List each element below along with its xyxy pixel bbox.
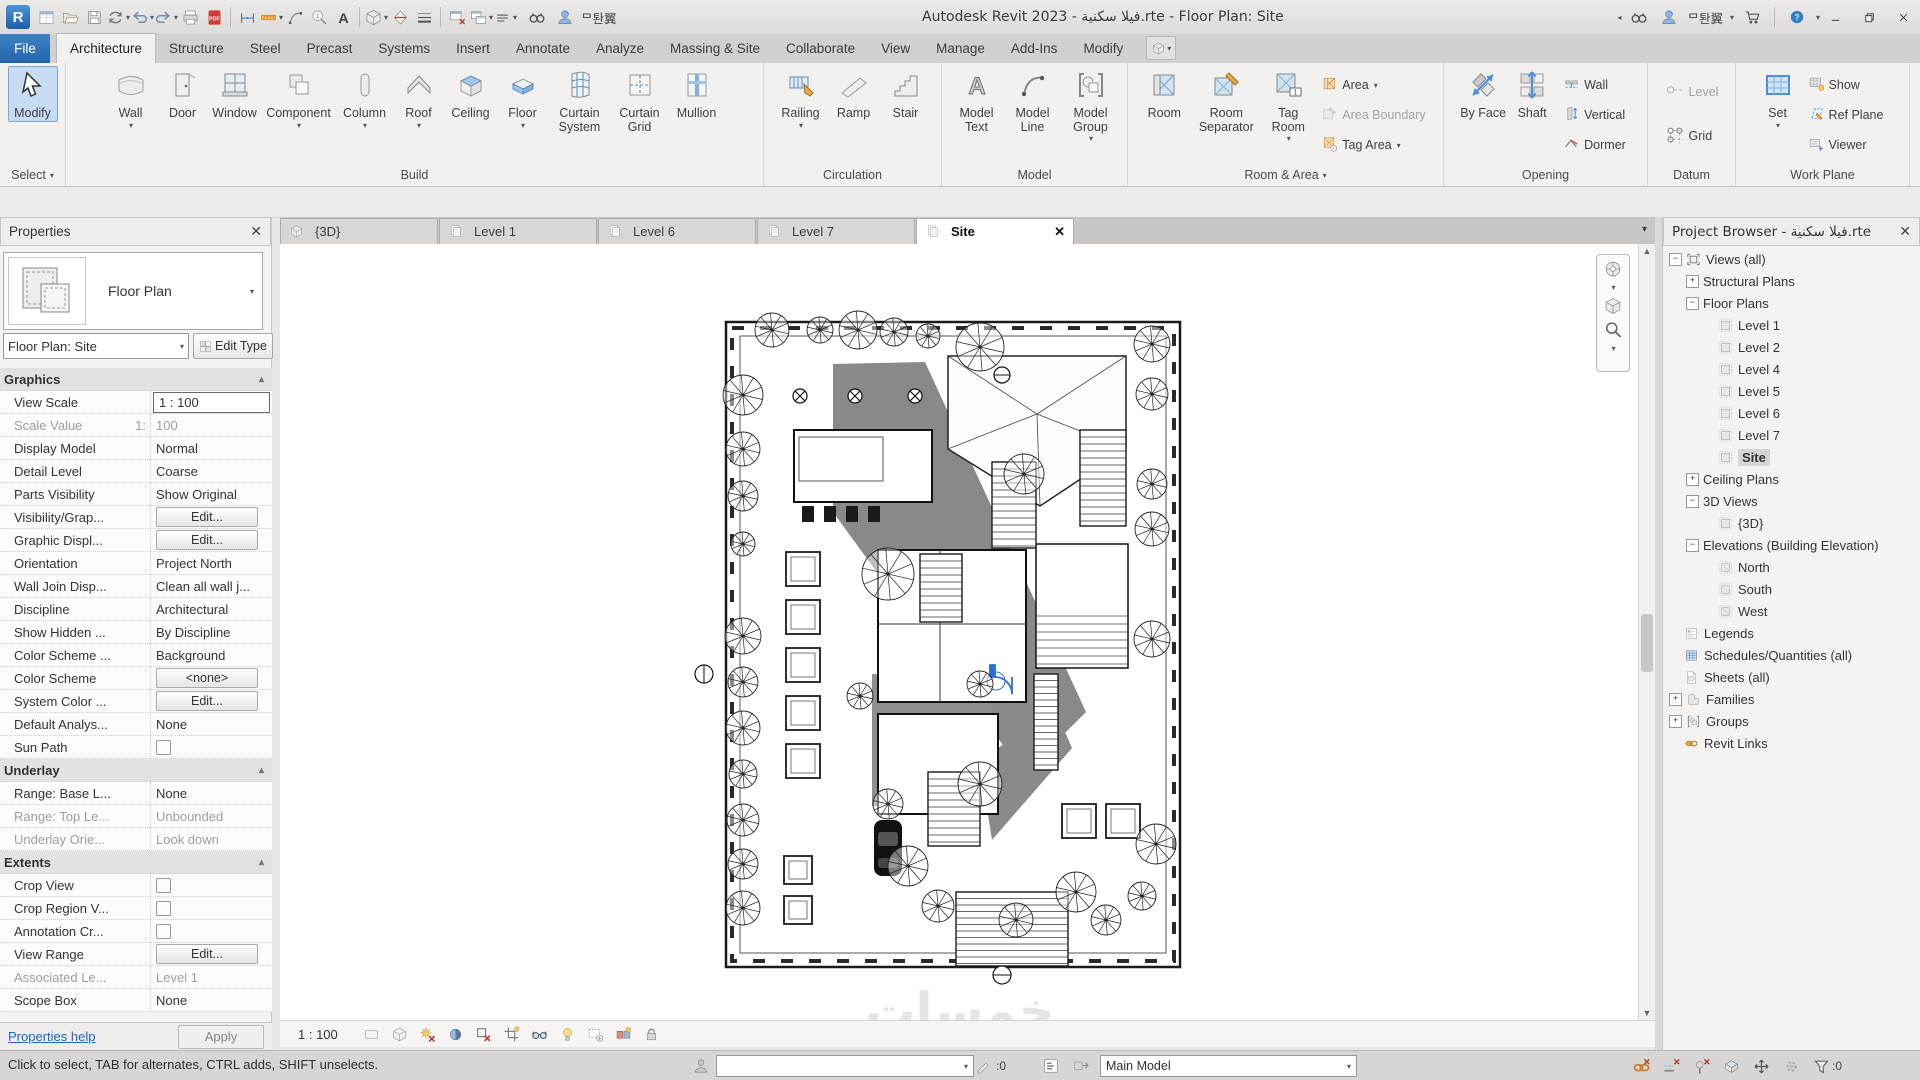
room-separator-button[interactable]: Room Separator: [1191, 66, 1261, 135]
property-row: Visibility/Grap...Edit...: [0, 506, 272, 529]
view-tab-level-7[interactable]: Level 7: [757, 218, 915, 244]
tab-view[interactable]: View: [868, 34, 923, 63]
svg-text:A: A: [338, 10, 348, 26]
area-boundary-button[interactable]: Area Boundary: [1315, 100, 1431, 130]
model-text-button[interactable]: AModel Text: [950, 66, 1004, 135]
property-value[interactable]: <none>: [150, 667, 272, 689]
button-label: Door: [169, 107, 196, 121]
property-value[interactable]: 100: [150, 414, 272, 436]
property-value[interactable]: [150, 874, 272, 896]
drawing-area[interactable]: خمسات ▾ ▾: [280, 244, 1638, 1020]
railing-button[interactable]: Railing▾: [775, 66, 827, 131]
property-value[interactable]: None: [150, 989, 272, 1011]
design-options-pick-icon[interactable]: [1070, 1055, 1092, 1077]
collapse-icon[interactable]: −: [1686, 539, 1699, 552]
export-pdf-icon[interactable]: PDF: [202, 4, 226, 30]
crop-view-icon[interactable]: [473, 1024, 494, 1045]
properties-help-link[interactable]: Properties help: [8, 1029, 95, 1044]
view-tab--3d-[interactable]: {3D}: [280, 218, 438, 244]
button-label: Room: [1148, 107, 1181, 121]
model-group-button[interactable]: Model Group▾: [1062, 66, 1120, 144]
panel-label-text: Build: [401, 168, 429, 182]
property-value[interactable]: Edit...: [150, 690, 272, 712]
tree-item-level-5[interactable]: Level 5: [1663, 380, 1920, 402]
temporary-view-properties-icon[interactable]: [585, 1024, 606, 1045]
svg-text:1: 1: [316, 14, 319, 20]
user-name[interactable]: ᄆ퇀翼: [1687, 8, 1723, 27]
chevron-down-icon: ▾: [521, 121, 525, 130]
property-value[interactable]: Edit...: [150, 529, 272, 551]
property-value[interactable]: Unbounded: [150, 805, 272, 827]
app-store-icon[interactable]: [1740, 4, 1764, 30]
checkbox[interactable]: [156, 878, 171, 893]
tree-item-south[interactable]: South: [1663, 578, 1920, 600]
panel-body: By FaceShaftWallVerticalDormer: [1444, 63, 1647, 164]
edit-button[interactable]: Edit...: [156, 691, 258, 711]
visual-style-icon[interactable]: [389, 1024, 410, 1045]
floor-plan-icon: [766, 224, 781, 239]
property-label-text: Wall Join Disp...: [14, 579, 107, 594]
select-underlay-icon[interactable]: [1660, 1055, 1682, 1077]
reveal-hidden-elements-icon[interactable]: [557, 1024, 578, 1045]
tree-item-legends[interactable]: Legends: [1663, 622, 1920, 644]
button-label: Railing: [781, 107, 819, 121]
level-icon: [1665, 81, 1685, 104]
viewer-button[interactable]: Viewer: [1802, 130, 1890, 160]
property-value[interactable]: By Discipline: [150, 621, 272, 643]
tree-item-views-all-[interactable]: −Views (all): [1663, 248, 1920, 270]
ref-plane-button[interactable]: Ref Plane: [1802, 100, 1890, 130]
property-value[interactable]: [150, 736, 272, 758]
property-value-text: Coarse: [156, 464, 198, 479]
by-face-button[interactable]: By Face: [1459, 66, 1507, 122]
tree-item-site[interactable]: Site: [1663, 446, 1920, 468]
component-button[interactable]: Component▾: [262, 66, 336, 131]
svg-text:PDF: PDF: [209, 16, 220, 22]
property-value-text: Look down: [156, 832, 219, 847]
property-label-text: Color Scheme: [14, 671, 96, 686]
show-crop-region-icon[interactable]: [501, 1024, 522, 1045]
tree-item-elevations-building-elevation-[interactable]: −Elevations (Building Elevation): [1663, 534, 1920, 556]
tree-item-label: Legends: [1704, 626, 1754, 641]
tag-area-button[interactable]: Tag Area▾: [1315, 130, 1431, 160]
property-row: Wall Join Disp...Clean all wall j...: [0, 575, 272, 598]
tree-item-label: Floor Plans: [1703, 296, 1769, 311]
curtain-grid-button[interactable]: Curtain Grid: [612, 66, 668, 135]
shaft-button[interactable]: Shaft: [1509, 66, 1555, 122]
worksets-dropdown[interactable]: ▾: [716, 1055, 974, 1077]
open-icon[interactable]: [58, 4, 82, 30]
property-label: Show Hidden ...: [0, 625, 150, 640]
ref-plane-icon: [1808, 105, 1825, 125]
svg-text:A: A: [968, 73, 985, 100]
tree-item-label: North: [1738, 560, 1770, 575]
property-value-text: None: [156, 717, 187, 732]
section-icon[interactable]: [388, 4, 412, 30]
tree-item-3d-views[interactable]: −3D Views: [1663, 490, 1920, 512]
switch-windows-icon[interactable]: ▾: [469, 4, 493, 30]
view-tab-label: Level 1: [474, 224, 516, 239]
revit-logo[interactable]: R: [6, 5, 30, 29]
tree-item-level-1[interactable]: Level 1: [1663, 314, 1920, 336]
background-processes-icon[interactable]: [1780, 1055, 1802, 1077]
chevron-down-icon: ▾: [180, 342, 184, 351]
button-label: Curtain Grid: [613, 107, 667, 134]
property-label-text: Crop View: [14, 878, 74, 893]
property-value[interactable]: Coarse: [150, 460, 272, 482]
view-tab-site[interactable]: Site✕: [916, 218, 1074, 244]
view-tab-level-1[interactable]: Level 1: [439, 218, 597, 244]
select-by-face-icon[interactable]: [1720, 1055, 1742, 1077]
model-text-icon: A: [961, 69, 993, 104]
close-inactive-windows-icon[interactable]: [445, 4, 469, 30]
search-icon[interactable]: [1627, 4, 1651, 30]
panel-label-text: Opening: [1522, 168, 1569, 182]
door-button[interactable]: Door: [158, 66, 208, 122]
type-selector[interactable]: Floor Plan ▾: [3, 252, 263, 330]
tree-item-level-6[interactable]: Level 6: [1663, 402, 1920, 424]
tree-item-ceiling-plans[interactable]: +Ceiling Plans: [1663, 468, 1920, 490]
property-value-text: Unbounded: [156, 809, 223, 824]
property-value[interactable]: 1 : 100: [150, 391, 272, 413]
chevron-down-icon: ▾: [417, 121, 421, 130]
model-line-button[interactable]: Model Line: [1006, 66, 1060, 135]
tag-room-icon: 1: [1272, 69, 1304, 104]
grid-button[interactable]: Grid: [1659, 114, 1725, 158]
elev-icon: [1718, 582, 1733, 597]
measure-icon[interactable]: ▾: [259, 4, 283, 30]
button-label: By Face: [1460, 107, 1506, 121]
help-icon[interactable]: ?: [1785, 4, 1809, 30]
button-label: Roof: [405, 107, 431, 121]
type-name: Floor Plan: [108, 283, 172, 299]
section-header-graphics[interactable]: Graphics▴: [0, 368, 272, 391]
section-header-extents[interactable]: Extents▴: [0, 851, 272, 874]
quick-access-toolbar: R▾▾▾PDF▾1A▾▾▾: [0, 4, 517, 30]
expand-icon[interactable]: +: [1686, 473, 1699, 486]
property-value-text: 1 : 100: [153, 392, 270, 413]
drag-on-selection-icon[interactable]: [1750, 1055, 1772, 1077]
property-value[interactable]: Level 1: [150, 966, 272, 988]
worksets-icon[interactable]: [690, 1055, 712, 1077]
show-button[interactable]: Show: [1802, 70, 1890, 100]
property-value-text: Show Original: [156, 487, 237, 502]
apply-button[interactable]: Apply: [178, 1025, 264, 1049]
tab-steel[interactable]: Steel: [237, 34, 294, 63]
collapse-icon[interactable]: ▴: [259, 765, 264, 776]
tag-room-button[interactable]: 1Tag Room▾: [1263, 66, 1313, 144]
select-links-icon[interactable]: [1630, 1055, 1652, 1077]
button-label: Wall: [1584, 78, 1608, 92]
tab-annotate[interactable]: Annotate: [503, 34, 583, 63]
tab-manage[interactable]: Manage: [923, 34, 998, 63]
property-value[interactable]: Background: [150, 644, 272, 666]
site-plan-drawing[interactable]: [280, 244, 1638, 1020]
roof-button[interactable]: Roof▾: [394, 66, 444, 131]
tree-item-groups[interactable]: +Groups: [1663, 710, 1920, 732]
tree-item-level-4[interactable]: Level 4: [1663, 358, 1920, 380]
shadows-icon[interactable]: [445, 1024, 466, 1045]
level-button[interactable]: Level: [1659, 70, 1725, 114]
search-icon[interactable]: [525, 4, 549, 30]
chevron-down-icon: ▾: [363, 121, 367, 130]
floor-icon: [507, 69, 539, 104]
property-value[interactable]: Clean all wall j...: [150, 575, 272, 597]
tree-item-level-7[interactable]: Level 7: [1663, 424, 1920, 446]
thin-lines-icon[interactable]: [412, 4, 436, 30]
button-label: Viewer: [1829, 138, 1867, 152]
sun-path-icon[interactable]: [417, 1024, 438, 1045]
wall-icon: [115, 69, 147, 104]
detail-level-icon[interactable]: [361, 1024, 382, 1045]
elev-icon: [1718, 560, 1733, 575]
status-message: Click to select, TAB for alternates, CTR…: [8, 1057, 378, 1072]
property-value[interactable]: [150, 897, 272, 919]
checkbox[interactable]: [156, 924, 171, 939]
property-value[interactable]: [150, 920, 272, 942]
tab-precast[interactable]: Precast: [294, 34, 366, 63]
property-value[interactable]: Architectural: [150, 598, 272, 620]
property-label: Color Scheme ...: [0, 648, 150, 663]
expand-icon[interactable]: +: [1669, 715, 1682, 728]
type-combo[interactable]: Floor Plan: Site ▾: [3, 333, 189, 359]
tab-systems[interactable]: Systems: [365, 34, 443, 63]
tree-item-north[interactable]: North: [1663, 556, 1920, 578]
watermark: خمسات: [820, 982, 1100, 1020]
mullion-button[interactable]: Mullion: [670, 66, 724, 122]
navigation-bar[interactable]: ▾ ▾: [1596, 254, 1630, 372]
chevron-down-icon: ▾: [1089, 134, 1093, 143]
property-label-text: View Scale: [14, 395, 78, 410]
sync-icon[interactable]: ▾: [106, 4, 130, 30]
chevron-down-icon: ▾: [1374, 81, 1378, 90]
tree-item-families[interactable]: +Families: [1663, 688, 1920, 710]
curtain-grid-icon: [624, 69, 656, 104]
tab-collaborate[interactable]: Collaborate: [773, 34, 868, 63]
property-label: Associated Le...: [0, 970, 150, 985]
collapse-icon[interactable]: −: [1686, 297, 1699, 310]
checkbox[interactable]: [156, 740, 171, 755]
schedule-icon: [1684, 648, 1699, 663]
component-icon: [283, 69, 315, 104]
tree-item-structural-plans[interactable]: +Structural Plans: [1663, 270, 1920, 292]
property-value[interactable]: Edit...: [150, 943, 272, 965]
none-button[interactable]: <none>: [156, 668, 258, 688]
restore-button[interactable]: [1852, 3, 1886, 31]
panel-label: Room & Area▾: [1128, 164, 1443, 186]
user-icon[interactable]: [553, 4, 577, 30]
tab-file[interactable]: File: [0, 34, 50, 63]
close-icon[interactable]: ✕: [250, 223, 262, 240]
column-button[interactable]: Column▾: [338, 66, 392, 131]
collapse-icon[interactable]: −: [1686, 495, 1699, 508]
property-value-text: 100: [156, 418, 178, 433]
project-browser-tree: −Views (all)+Structural Plans−Floor Plan…: [1663, 248, 1920, 1050]
window-controls: [1818, 0, 1920, 34]
wall-button[interactable]: Wall▾: [106, 66, 156, 131]
panel-splitter[interactable]: [1655, 217, 1662, 1050]
dormer-button[interactable]: Dormer: [1557, 130, 1632, 160]
door-icon: [167, 69, 199, 104]
expand-icon[interactable]: +: [1686, 275, 1699, 288]
edit-button[interactable]: Edit...: [156, 507, 258, 527]
editing-requests-icon[interactable]: [972, 1055, 994, 1077]
tree-item-label: Level 7: [1738, 428, 1780, 443]
button-label: Mullion: [677, 107, 717, 121]
vertical-button[interactable]: Vertical: [1557, 100, 1632, 130]
property-label-text: Discipline: [14, 602, 70, 617]
tab-massing-site[interactable]: Massing & Site: [657, 34, 773, 63]
tree-item-schedules-quantities-all-[interactable]: Schedules/Quantities (all): [1663, 644, 1920, 666]
stack-column: WallVerticalDormer: [1557, 66, 1632, 160]
text-icon[interactable]: A: [331, 4, 355, 30]
area-button[interactable]: Area▾: [1315, 70, 1431, 100]
constraints-icon[interactable]: [641, 1024, 662, 1045]
edit-button[interactable]: Edit...: [156, 530, 258, 550]
property-label: Scope Box: [0, 993, 150, 1008]
status-bar: Click to select, TAB for alternates, CTR…: [0, 1050, 1920, 1080]
user-icon[interactable]: [1657, 4, 1681, 30]
properties-palette-icon[interactable]: [34, 4, 58, 30]
property-row: Associated Le...Level 1: [0, 966, 272, 989]
view-tab-level-6[interactable]: Level 6: [598, 218, 756, 244]
aligned-dimension-icon[interactable]: [235, 4, 259, 30]
ribbon-panel-build: Wall▾DoorWindowComponent▾Column▾Roof▾Cei…: [66, 63, 764, 186]
undo-icon[interactable]: ▾: [130, 4, 154, 30]
property-value[interactable]: Show Original: [150, 483, 272, 505]
edit-type-button[interactable]: Edit Type: [193, 333, 273, 359]
tab-insert[interactable]: Insert: [443, 34, 503, 63]
default-3d-view-icon[interactable]: ▾: [364, 4, 388, 30]
stair-icon: [890, 69, 922, 104]
worksharing-display-icon[interactable]: [613, 1024, 634, 1045]
tree-item-label: Level 6: [1738, 406, 1780, 421]
cursor-icon: [17, 69, 49, 104]
design-options-dialog-icon[interactable]: [1040, 1055, 1062, 1077]
property-row: Underlay Orie...Look down: [0, 828, 272, 851]
print-icon[interactable]: [178, 4, 202, 30]
view-tab-label: {3D}: [315, 224, 340, 239]
curtain-system-button[interactable]: Curtain System: [550, 66, 610, 135]
chevron-down-icon: ▾: [50, 171, 54, 180]
property-value[interactable]: None: [150, 713, 272, 735]
chevron-down-icon[interactable]: ▾: [1730, 13, 1734, 22]
property-label-text: Graphic Displ...: [14, 533, 103, 548]
window-button[interactable]: Window: [210, 66, 260, 122]
property-value[interactable]: Project North: [150, 552, 272, 574]
select-pinned-icon[interactable]: [1690, 1055, 1712, 1077]
collapse-icon[interactable]: ▴: [259, 857, 264, 868]
property-label-text: System Color ...: [14, 694, 106, 709]
section-label: Graphics: [4, 372, 60, 387]
property-label-text: Crop Region V...: [14, 901, 109, 916]
button-label: Tag Room: [1264, 107, 1312, 134]
plan-icon: [1718, 428, 1733, 443]
viewer-icon: [1808, 135, 1825, 155]
filter-icon[interactable]: [1810, 1055, 1832, 1077]
customize-qat-icon[interactable]: ▾: [493, 4, 517, 30]
floor-plan-icon: [925, 224, 940, 239]
panel-body: Set▾ShowRef PlaneViewer: [1736, 63, 1909, 164]
temporary-hide-isolate-icon[interactable]: [529, 1024, 550, 1045]
wall-button[interactable]: Wall: [1557, 70, 1632, 100]
modify-button[interactable]: Modify: [8, 66, 58, 122]
views-icon: [1686, 252, 1701, 267]
close-icon[interactable]: ✕: [1054, 224, 1065, 240]
property-label: Sun Path: [0, 740, 150, 755]
ceiling-button[interactable]: Ceiling: [446, 66, 496, 122]
collapse-icon[interactable]: ◂: [1617, 13, 1621, 22]
vertical-scrollbar[interactable]: ▲ ▼: [1638, 244, 1655, 1020]
property-label: Color Scheme: [0, 671, 150, 686]
save-icon[interactable]: [82, 4, 106, 30]
tree-item-sheets-all-[interactable]: Sheets (all): [1663, 666, 1920, 688]
tab-structure[interactable]: Structure: [156, 34, 237, 63]
scroll-down-icon[interactable]: ▼: [1642, 1008, 1652, 1018]
tree-item-label: Schedules/Quantities (all): [1704, 648, 1852, 663]
tree-item-west[interactable]: West: [1663, 600, 1920, 622]
collapse-icon[interactable]: −: [1669, 253, 1682, 266]
panel-label-text: Circulation: [823, 168, 882, 182]
chevron-down-icon: ▾: [1323, 171, 1327, 180]
ribbon-panel-circulation: Railing▾RampStairCirculation: [764, 63, 942, 186]
collapse-icon[interactable]: ▴: [259, 374, 264, 385]
property-label: Crop Region V...: [0, 901, 150, 916]
model-line-icon[interactable]: [283, 4, 307, 30]
scrollbar-thumb[interactable]: [1641, 614, 1653, 672]
property-value[interactable]: None: [150, 782, 272, 804]
view-scale-control[interactable]: 1 : 100: [298, 1027, 338, 1042]
edit-button[interactable]: Edit...: [156, 944, 258, 964]
close-button[interactable]: [1886, 3, 1920, 31]
property-value-text: By Discipline: [156, 625, 230, 640]
set-button[interactable]: Set▾: [1756, 66, 1800, 131]
property-label-text: Range: Top Le...: [14, 809, 109, 824]
ramp-button[interactable]: Ramp: [829, 66, 879, 122]
close-icon[interactable]: ✕: [1899, 224, 1911, 240]
design-options-dropdown[interactable]: Main Model▾: [1100, 1055, 1357, 1077]
redo-icon[interactable]: ▾: [154, 4, 178, 30]
tag-by-category-icon[interactable]: 1: [307, 4, 331, 30]
minimize-button[interactable]: [1818, 3, 1852, 31]
tab-modify[interactable]: Modify: [1070, 34, 1136, 63]
tab-architecture[interactable]: Architecture: [56, 33, 156, 63]
scroll-up-icon[interactable]: ▲: [1642, 246, 1652, 256]
tree-item-floor-plans[interactable]: −Floor Plans: [1663, 292, 1920, 314]
tree-item--3d-[interactable]: {3D}: [1663, 512, 1920, 534]
panel-body: LevelGrid: [1648, 63, 1735, 164]
expand-icon[interactable]: +: [1669, 693, 1682, 706]
room-button[interactable]: Room: [1139, 66, 1189, 122]
property-value[interactable]: Normal: [150, 437, 272, 459]
tree-item-level-2[interactable]: Level 2: [1663, 336, 1920, 358]
tab-analyze[interactable]: Analyze: [583, 34, 657, 63]
active-tool-indicator[interactable]: ▾: [1146, 36, 1176, 60]
property-value[interactable]: Look down: [150, 828, 272, 850]
property-value[interactable]: Edit...: [150, 506, 272, 528]
tree-item-revit-links[interactable]: Revit Links: [1663, 732, 1920, 754]
checkbox[interactable]: [156, 901, 171, 916]
sheet-icon: [1684, 670, 1699, 685]
property-label-text: Visibility/Grap...: [14, 510, 104, 525]
edit-type-icon: [199, 340, 212, 353]
section-header-underlay[interactable]: Underlay▴: [0, 759, 272, 782]
property-label: Wall Join Disp...: [0, 579, 150, 594]
stair-button[interactable]: Stair: [881, 66, 931, 122]
tab-add-ins[interactable]: Add-Ins: [998, 34, 1071, 63]
plan-icon: [1718, 340, 1733, 355]
floor-button[interactable]: Floor▾: [498, 66, 548, 131]
